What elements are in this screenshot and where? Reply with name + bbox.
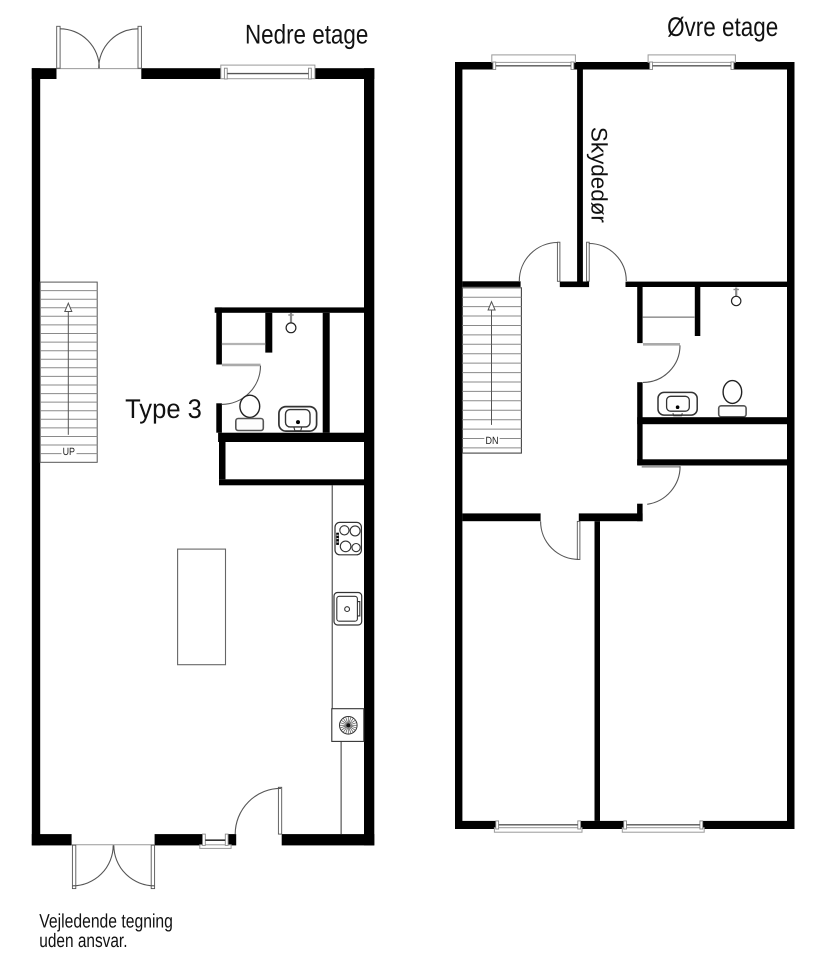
svg-text:uden ansvar.: uden ansvar. xyxy=(39,930,127,952)
svg-text:DN: DN xyxy=(486,435,499,447)
svg-text:Øvre etage: Øvre etage xyxy=(667,12,778,42)
svg-text:UP: UP xyxy=(63,446,75,458)
svg-text:Type 3: Type 3 xyxy=(125,394,202,424)
svg-text:Nedre etage: Nedre etage xyxy=(245,19,368,49)
svg-text:Skydedør: Skydedør xyxy=(586,127,611,223)
